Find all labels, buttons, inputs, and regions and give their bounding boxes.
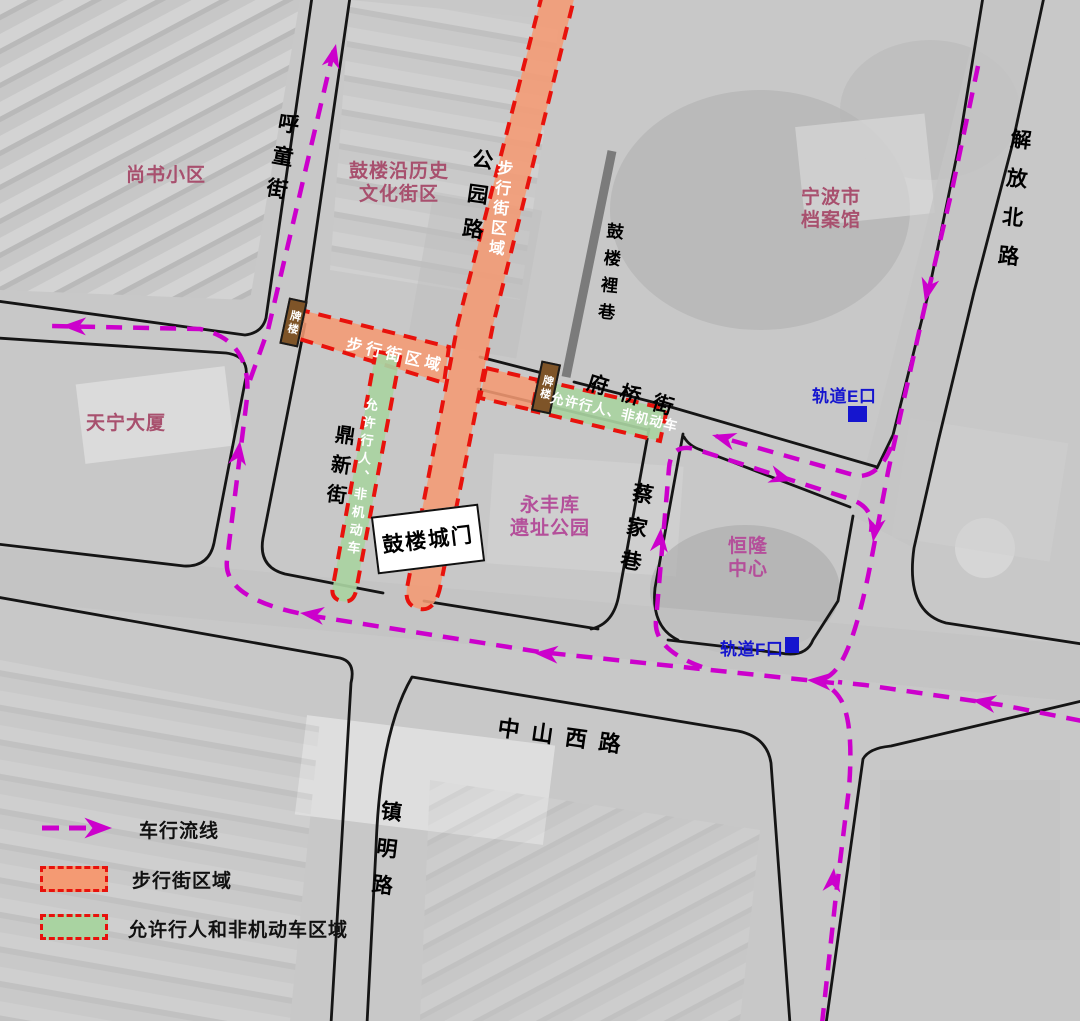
area-label-henglong-line1: 恒隆 — [724, 535, 772, 558]
gulou-gate-label: 鼓楼城门 — [381, 519, 476, 560]
legend-pedestrian-swatch — [40, 866, 108, 892]
metro-f-square — [785, 637, 799, 653]
area-label-archives-line2: 档案馆 — [799, 209, 863, 232]
legend-pedestrian-label: 步行街区域 — [132, 866, 232, 893]
area-label-gulou-district-line1: 鼓楼沿历史 — [343, 160, 455, 183]
area-label-gulou-district: 鼓楼沿历史 文化街区 — [343, 160, 455, 206]
pailou-label: 牌楼 — [283, 308, 304, 337]
area-label-shangshu: 尚书小区 — [126, 164, 206, 187]
area-label-archives: 宁波市 档案馆 — [799, 186, 863, 232]
area-label-yongfengku-line1: 永丰库 — [505, 494, 595, 517]
metro-f-label: 轨道F口 — [720, 635, 783, 660]
map-canvas: 牌楼 牌楼 鼓楼城门 呼童街 公园路 鼓楼裡巷 府桥街 解放北路 蔡家巷 鼎新街… — [0, 0, 1080, 1021]
legend-mixed-label: 允许行人和非机动车区域 — [128, 915, 348, 942]
area-label-henglong: 恒隆 中心 — [724, 535, 772, 581]
metro-e-square — [848, 406, 867, 422]
area-label-archives-line1: 宁波市 — [799, 186, 863, 209]
metro-e-label: 轨道E口 — [812, 382, 876, 407]
area-label-yongfengku: 永丰库 遗址公园 — [505, 494, 595, 540]
area-label-gulou-district-line2: 文化街区 — [343, 183, 455, 206]
legend-flow-label: 车行流线 — [139, 816, 219, 843]
area-label-henglong-line2: 中心 — [724, 558, 772, 581]
area-label-yongfengku-line2: 遗址公园 — [505, 517, 595, 540]
legend-mixed-swatch — [40, 914, 108, 940]
area-label-tianning: 天宁大厦 — [86, 412, 166, 435]
